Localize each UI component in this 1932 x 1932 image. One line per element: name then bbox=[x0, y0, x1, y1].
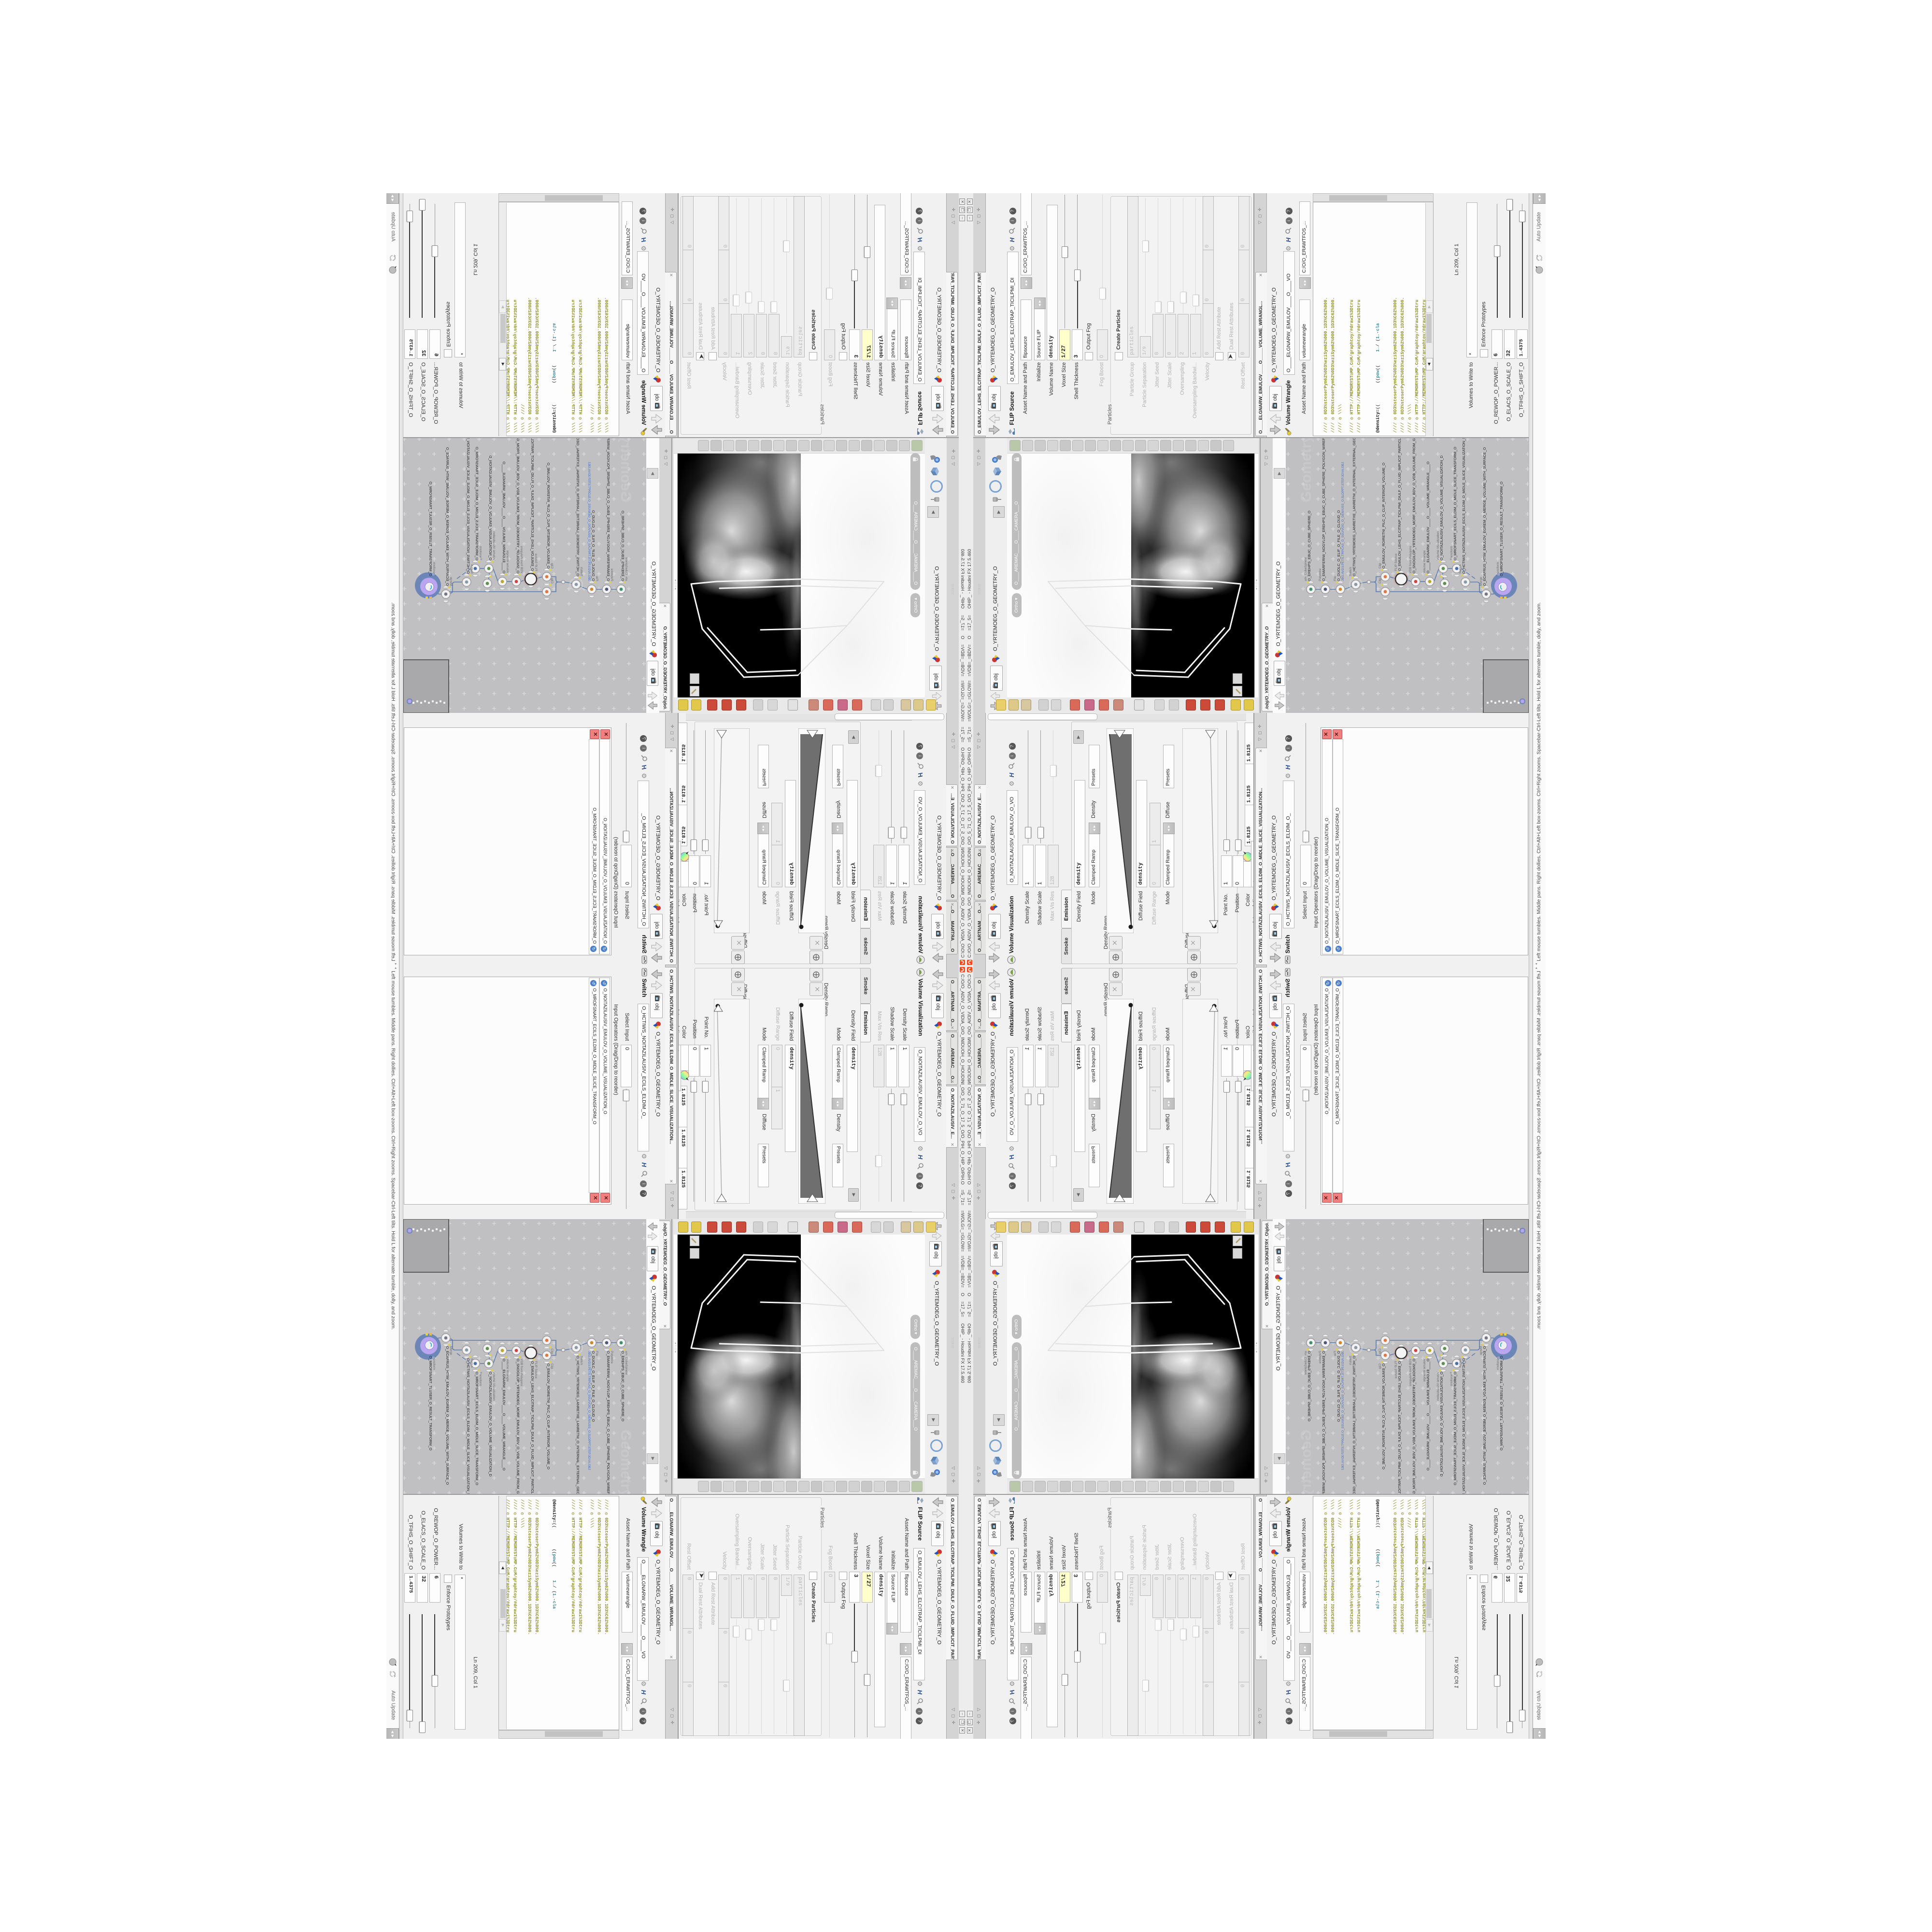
svg-text:O_HCTIWS_YRTEMOEG_LANRETXE_LAN: O_HCTIWS_YRTEMOEG_LANRETXE_LANRETNI_O_IN… bbox=[576, 438, 580, 576]
svg-text:O_HCTIWS_YRTEMOEG_LANRETXE_LAN: O_HCTIWS_YRTEMOEG_LANRETXE_LANRETNI_O_IN… bbox=[576, 1356, 580, 1494]
svg-text:File: File bbox=[595, 576, 598, 581]
svg-text:Clip: Clip bbox=[550, 578, 554, 583]
svg-text:O_ECAFRUS_HTIW_EMULOV_EGREM_O_: O_ECAFRUS_HTIW_EMULOV_EGREM_O_MERGE_VOLU… bbox=[1482, 447, 1487, 586]
svg-text:FLIP Source: FLIP Source bbox=[534, 1361, 538, 1378]
svg-text:PolyWire: PolyWire bbox=[610, 568, 613, 581]
svg-text:O_EMARFERIW_NOGYLOP_EREHPS_EBU: O_EMARFERIW_NOGYLOP_EREHPS_EBUC_O_CUBE_S… bbox=[1321, 1351, 1326, 1494]
svg-text:Transform: Transform bbox=[479, 546, 482, 560]
svg-text:O_MROFSNART_ECILS_ELDIM_O_MIDL: O_MROFSNART_ECILS_ELDIM_O_MIDLE_SLICE_TR… bbox=[1453, 1372, 1457, 1485]
svg-text:O_DUOLC_O_ELIF_O_FILE_O_CLOUD_: O_DUOLC_O_ELIF_O_FILE_O_CLOUD_O bbox=[1336, 1351, 1341, 1422]
svg-text:Clip: Clip bbox=[1378, 1349, 1382, 1354]
svg-text:O_NOITAZILAUSIV_EMULOV_O_VOLUM: O_NOITAZILAUSIV_EMULOV_O_VOLUME_VISUALIZ… bbox=[1439, 1372, 1444, 1477]
svg-text:Transform: Transform bbox=[479, 1372, 482, 1386]
svg-text:O_MROFSNART_TLUSER_O_RESULT_TR: O_MROFSNART_TLUSER_O_RESULT_TRANSFORM_O bbox=[1499, 1356, 1504, 1450]
svg-text:O_MROFSNART_TLUSER_O_RESULT_TR: O_MROFSNART_TLUSER_O_RESULT_TRANSFORM_O bbox=[428, 1356, 433, 1450]
svg-text:O_MROFSNART_TLUSER_O_RESULT_TR: O_MROFSNART_TLUSER_O_RESULT_TRANSFORM_O bbox=[1499, 482, 1504, 576]
svg-text:Transform: Transform bbox=[432, 562, 436, 576]
svg-text:O____ELGNARW_EMULOV____O____VO: O____ELGNARW_EMULOV____O____VOLUME_WRANG… bbox=[1426, 1359, 1430, 1471]
svg-text:am_CubeSphere: am_CubeSphere bbox=[625, 1351, 628, 1375]
svg-text:O____ELGNARW_EMULOV____O____VO: O____ELGNARW_EMULOV____O____VOLUME_WRANG… bbox=[502, 1359, 506, 1471]
svg-text:O_DUOLC_O_ELIF_O_FILE_O_CLOUD_: O_DUOLC_O_ELIF_O_FILE_O_CLOUD_O bbox=[591, 1351, 596, 1422]
svg-text:JBO.AVD3.PETS.TRPCAS_O_5SU/VOG: JBO.AVD3.PETS.TRPCAS_O_5SU/VOG_O_GEN/USS… bbox=[587, 462, 591, 581]
svg-text:O_EMULOV_ROIRETNI_PILC_O_CLIP_: O_EMULOV_ROIRETNI_PILC_O_CLIP_INTERIOR_V… bbox=[1381, 1364, 1386, 1469]
svg-text:O_ECAFRUS_HTIW_EMULOV_EGREM_O_: O_ECAFRUS_HTIW_EMULOV_EGREM_O_MERGE_VOLU… bbox=[1482, 1346, 1487, 1485]
svg-text:Volume Wrangle: Volume Wrangle bbox=[506, 1359, 509, 1382]
svg-text:File: File bbox=[595, 1351, 598, 1356]
svg-text:VDB from Polygons: VDB from Polygons bbox=[520, 1359, 523, 1386]
svg-text:O_EREHPS_EBUC_O_CUBE_SPHERE_O: O_EREHPS_EBUC_O_CUBE_SPHERE_O bbox=[621, 511, 625, 581]
svg-text:JBO.AVD3.PETS.TRPCAS_O_5SU/VOG: JBO.AVD3.PETS.TRPCAS_O_5SU/VOG_O_GEN/USS… bbox=[1341, 1351, 1345, 1470]
svg-text:Merge: Merge bbox=[449, 577, 453, 586]
svg-text:O_ECAFRUS_HTIW_EMULOV_EGREM_O_: O_ECAFRUS_HTIW_EMULOV_EGREM_O_MERGE_VOLU… bbox=[445, 447, 450, 586]
svg-text:O_MROFSNART_ECILS_ELDIM_O_MIDL: O_MROFSNART_ECILS_ELDIM_O_MIDLE_SLICE_TR… bbox=[475, 447, 479, 560]
svg-text:O_HCTIWS_NOITAZILAUSIV_ECILS_E: O_HCTIWS_NOITAZILAUSIV_ECILS_ELDIM_O_MID… bbox=[466, 1358, 470, 1494]
svg-text:O_HCTIWS_YRTEMOEG_LANRETXE_LAN: O_HCTIWS_YRTEMOEG_LANRETXE_LANRETNI_O_IN… bbox=[1352, 1356, 1356, 1494]
svg-text:O_EMULOV_ROIRETNI_PILC_O_CLIP_: O_EMULOV_ROIRETNI_PILC_O_CLIP_INTERIOR_V… bbox=[546, 1364, 551, 1469]
svg-text:O_EMULOV_LEHS_ELCITRAP_TICILPM: O_EMULOV_LEHS_ELCITRAP_TICILPMI_DIULF_O_… bbox=[1397, 438, 1402, 571]
svg-text:O_SNOGILOP_YRTEMOEG_MORF_EMULO: O_SNOGILOP_YRTEMOEG_MORF_EMULOV_BDV_O_VD… bbox=[1412, 438, 1416, 573]
svg-text:Merge: Merge bbox=[449, 1346, 453, 1355]
svg-text:Switch: Switch bbox=[470, 1358, 473, 1368]
svg-text:O_MROFSNART_ECILS_ELDIM_O_MIDL: O_MROFSNART_ECILS_ELDIM_O_MIDLE_SLICE_TR… bbox=[475, 1372, 479, 1485]
svg-text:FLIP Source: FLIP Source bbox=[534, 554, 538, 571]
svg-text:O_HCTIWS_YRTEMOEG_LANRETXE_LAN: O_HCTIWS_YRTEMOEG_LANRETXE_LANRETNI_O_IN… bbox=[1352, 438, 1356, 576]
svg-text:O_EMARFERIW_NOGYLOP_EREHPS_EBU: O_EMARFERIW_NOGYLOP_EREHPS_EBUC_O_CUBE_S… bbox=[606, 1351, 611, 1494]
svg-text:O_SNOGILOP_YRTEMOEG_MORF_EMULO: O_SNOGILOP_YRTEMOEG_MORF_EMULOV_BDV_O_VD… bbox=[1412, 1359, 1416, 1494]
svg-text:O_NOITAZILAUSIV_EMULOV_O_VOLUM: O_NOITAZILAUSIV_EMULOV_O_VOLUME_VISUALIZ… bbox=[488, 1372, 493, 1477]
svg-text:Switch: Switch bbox=[580, 567, 583, 576]
svg-text:O_EREHPS_EBUC_O_CUBE_SPHERE_O: O_EREHPS_EBUC_O_CUBE_SPHERE_O bbox=[621, 1351, 625, 1421]
svg-text:O_HCTIWS_NOITAZILAUSIV_ECILS_E: O_HCTIWS_NOITAZILAUSIV_ECILS_ELDIM_O_MID… bbox=[1462, 438, 1466, 574]
svg-text:Clip: Clip bbox=[550, 1349, 554, 1354]
svg-text:VDB from Polygons: VDB from Polygons bbox=[520, 546, 523, 573]
svg-text:O_EREHPS_EBUC_O_CUBE_SPHERE_O: O_EREHPS_EBUC_O_CUBE_SPHERE_O bbox=[1307, 1351, 1311, 1421]
svg-text:Volume Wrangle: Volume Wrangle bbox=[506, 550, 509, 573]
svg-text:O_NOITAZILAUSIV_EMULOV_O_VOLUM: O_NOITAZILAUSIV_EMULOV_O_VOLUME_VISUALIZ… bbox=[488, 455, 493, 560]
svg-text:O_EMARFERIW_NOGYLOP_EREHPS_EBU: O_EMARFERIW_NOGYLOP_EREHPS_EBUC_O_CUBE_S… bbox=[1321, 438, 1326, 581]
svg-text:O____ELGNARW_EMULOV____O____VO: O____ELGNARW_EMULOV____O____VOLUME_WRANG… bbox=[1426, 461, 1430, 573]
svg-text:O_HCTIWS_NOITAZILAUSIV_ECILS_E: O_HCTIWS_NOITAZILAUSIV_ECILS_ELDIM_O_MID… bbox=[1462, 1358, 1466, 1494]
svg-text:O_EMULOV_ROIRETNI_PILC_O_CLIP_: O_EMULOV_ROIRETNI_PILC_O_CLIP_INTERIOR_V… bbox=[1381, 463, 1386, 568]
svg-text:O_EMARFERIW_NOGYLOP_EREHPS_EBU: O_EMARFERIW_NOGYLOP_EREHPS_EBUC_O_CUBE_S… bbox=[606, 438, 611, 581]
svg-text:O_EMULOV_LEHS_ELCITRAP_TICILPM: O_EMULOV_LEHS_ELCITRAP_TICILPMI_DIULF_O_… bbox=[530, 438, 535, 571]
svg-text:Volume Visualization: Volume Visualization bbox=[492, 531, 496, 560]
svg-text:O_ECAFRUS_HTIW_EMULOV_EGREM_O_: O_ECAFRUS_HTIW_EMULOV_EGREM_O_MERGE_VOLU… bbox=[445, 1346, 450, 1485]
svg-text:am_CubeSphere: am_CubeSphere bbox=[625, 557, 628, 581]
svg-text:Volume Visualization: Volume Visualization bbox=[492, 1372, 496, 1401]
svg-text:Switch: Switch bbox=[470, 564, 473, 574]
svg-text:O_EMULOV_ROIRETNI_PILC_O_CLIP_: O_EMULOV_ROIRETNI_PILC_O_CLIP_INTERIOR_V… bbox=[546, 463, 551, 568]
svg-text:Transform: Transform bbox=[432, 1356, 436, 1370]
svg-text:O_MROFSNART_ECILS_ELDIM_O_MIDL: O_MROFSNART_ECILS_ELDIM_O_MIDLE_SLICE_TR… bbox=[1453, 447, 1457, 560]
svg-text:JBO.AVD3.PETS.TRPCAS_O_5SU/VOG: JBO.AVD3.PETS.TRPCAS_O_5SU/VOG_O_GEN/USS… bbox=[1341, 462, 1345, 581]
svg-text:O_SNOGILOP_YRTEMOEG_MORF_EMULO: O_SNOGILOP_YRTEMOEG_MORF_EMULOV_BDV_O_VD… bbox=[516, 438, 520, 573]
svg-text:Clip: Clip bbox=[1378, 578, 1382, 583]
svg-text:O_DUOLC_O_ELIF_O_FILE_O_CLOUD_: O_DUOLC_O_ELIF_O_FILE_O_CLOUD_O bbox=[1336, 510, 1341, 581]
svg-text:O____ELGNARW_EMULOV____O____VO: O____ELGNARW_EMULOV____O____VOLUME_WRANG… bbox=[502, 461, 506, 573]
svg-text:Clip: Clip bbox=[550, 563, 554, 568]
svg-text:O_EMULOV_LEHS_ELCITRAP_TICILPM: O_EMULOV_LEHS_ELCITRAP_TICILPMI_DIULF_O_… bbox=[1397, 1361, 1402, 1494]
svg-text:O_DUOLC_O_ELIF_O_FILE_O_CLOUD_: O_DUOLC_O_ELIF_O_FILE_O_CLOUD_O bbox=[591, 510, 596, 581]
svg-text:O_NOITAZILAUSIV_EMULOV_O_VOLUM: O_NOITAZILAUSIV_EMULOV_O_VOLUME_VISUALIZ… bbox=[1439, 455, 1444, 560]
svg-text:Clip: Clip bbox=[550, 1364, 554, 1369]
svg-text:O_MROFSNART_TLUSER_O_RESULT_TR: O_MROFSNART_TLUSER_O_RESULT_TRANSFORM_O bbox=[428, 482, 433, 576]
svg-text:Switch: Switch bbox=[580, 1356, 583, 1365]
svg-text:O_SNOGILOP_YRTEMOEG_MORF_EMULO: O_SNOGILOP_YRTEMOEG_MORF_EMULOV_BDV_O_VD… bbox=[516, 1359, 520, 1494]
svg-text:PolyWire: PolyWire bbox=[610, 1351, 613, 1364]
svg-text:O_EMULOV_LEHS_ELCITRAP_TICILPM: O_EMULOV_LEHS_ELCITRAP_TICILPMI_DIULF_O_… bbox=[530, 1361, 535, 1494]
svg-text:JBO.AVD3.PETS.TRPCAS_O_5SU/VOG: JBO.AVD3.PETS.TRPCAS_O_5SU/VOG_O_GEN/USS… bbox=[587, 1351, 591, 1470]
svg-text:O_HCTIWS_NOITAZILAUSIV_ECILS_E: O_HCTIWS_NOITAZILAUSIV_ECILS_ELDIM_O_MID… bbox=[466, 438, 470, 574]
svg-text:O_EREHPS_EBUC_O_CUBE_SPHERE_O: O_EREHPS_EBUC_O_CUBE_SPHERE_O bbox=[1307, 511, 1311, 581]
